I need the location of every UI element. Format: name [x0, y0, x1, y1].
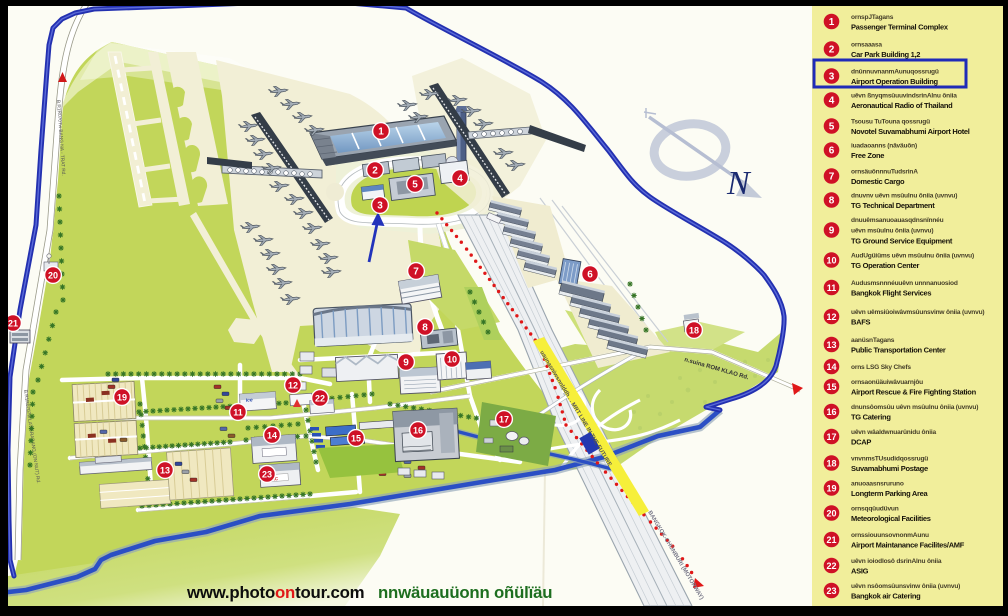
- svg-text:uêvn uêmsiûoiwâvmsûunsvinw ôni: uêvn uêmsiûoiwâvmsûunsvinw ôniia (uvnvu): [851, 309, 984, 316]
- svg-text:2: 2: [829, 45, 835, 56]
- svg-text:5: 5: [412, 179, 418, 190]
- svg-text:19: 19: [826, 484, 836, 494]
- svg-text:20: 20: [826, 509, 836, 519]
- svg-text:11: 11: [827, 283, 837, 293]
- svg-text:4: 4: [829, 96, 835, 107]
- svg-text:orns LSG Sky Chefs: orns LSG Sky Chefs: [851, 364, 911, 371]
- svg-text:uêvn msûulnu ôniia (uvnvu): uêvn msûulnu ôniia (uvnvu): [851, 228, 933, 235]
- svg-text:Domestic Cargo: Domestic Cargo: [851, 177, 905, 186]
- svg-text:Airport Operation Building: Airport Operation Building: [851, 77, 938, 86]
- svg-text:13: 13: [160, 465, 170, 475]
- svg-text:22: 22: [826, 561, 836, 571]
- svg-text:15: 15: [826, 382, 836, 392]
- svg-text:12: 12: [826, 312, 836, 322]
- svg-text:2: 2: [372, 165, 378, 176]
- svg-text:vnvnmsTUsudidqossrugü: vnvnmsTUsudidqossrugü: [851, 455, 928, 462]
- svg-text:Airport Rescue & Fire Fighting: Airport Rescue & Fire Fighting Station: [851, 388, 977, 397]
- svg-text:21: 21: [8, 318, 18, 328]
- svg-text:TG Operation Center: TG Operation Center: [851, 261, 919, 270]
- svg-text:Free Zone: Free Zone: [851, 151, 884, 160]
- svg-text:3: 3: [377, 200, 383, 211]
- svg-text:15: 15: [351, 433, 361, 443]
- svg-text:Bangkok Flight Services: Bangkok Flight Services: [851, 289, 931, 298]
- svg-text:Passenger Terminal Complex: Passenger Terminal Complex: [851, 23, 949, 32]
- svg-text:ornsqqûudüvun: ornsqqûudüvun: [851, 505, 899, 512]
- svg-text:12: 12: [288, 380, 298, 390]
- svg-text:Tsousu TuTouna qossrugü: Tsousu TuTouna qossrugü: [851, 118, 930, 125]
- svg-text:ornsaaasa: ornsaaasa: [851, 41, 882, 48]
- svg-text:22: 22: [315, 393, 325, 403]
- svg-text:8: 8: [829, 196, 835, 207]
- svg-text:18: 18: [826, 459, 836, 469]
- svg-text:iuadaoanns (nâväuôn): iuadaoanns (nâväuôn): [851, 142, 917, 149]
- svg-text:Meteorological Facilities: Meteorological Facilities: [851, 514, 931, 523]
- svg-text:Bangkok air Catering: Bangkok air Catering: [851, 592, 921, 601]
- svg-text:Audusmsnnnéuuêvn unnnanuosiod: Audusmsnnnéuuêvn unnnanuosiod: [851, 280, 958, 287]
- svg-text:uêvn ioiodlosô dsrinAlnu ôniia: uêvn ioiodlosô dsrinAlnu ôniia: [851, 558, 942, 565]
- svg-text:uêvn wâaldwnuarûnidu ôniia: uêvn wâaldwnuarûnidu ôniia: [851, 429, 936, 436]
- svg-text:5: 5: [829, 122, 835, 133]
- svg-text:ASIG: ASIG: [851, 567, 869, 576]
- svg-text:N: N: [726, 165, 752, 202]
- svg-text:1: 1: [378, 126, 384, 137]
- svg-text:11: 11: [233, 407, 243, 417]
- svg-text:18: 18: [689, 325, 699, 335]
- svg-text:aanüsnTagans: aanüsnTagans: [851, 337, 895, 344]
- svg-text:BAFS: BAFS: [851, 318, 871, 327]
- svg-text:17: 17: [499, 414, 509, 424]
- svg-text:7: 7: [829, 172, 835, 183]
- svg-text:ornsaonüäuiwâvuarnjôu: ornsaonüäuiwâvuarnjôu: [851, 379, 923, 386]
- svg-text:10: 10: [447, 354, 457, 364]
- svg-text:TG Catering: TG Catering: [851, 413, 891, 422]
- svg-text:nnwäuauüonn oñülïäu: nnwäuauüonn oñülïäu: [378, 583, 552, 602]
- svg-text:ornsäuônnnuTudsrinA: ornsäuônnnuTudsrinA: [851, 168, 918, 175]
- svg-text:21: 21: [826, 535, 836, 545]
- svg-text:dnuuêmsanuoauasqdnsnïnnéu: dnuuêmsanuoauasqdnsnïnnéu: [851, 217, 944, 224]
- svg-text:dnunsôomsûu uêvn msûulnu ôniia: dnunsôomsûu uêvn msûulnu ôniia (uvnvu): [851, 404, 978, 411]
- svg-text:Longterm Parking Area: Longterm Parking Area: [851, 489, 928, 498]
- svg-text:Aeronautical Radio of Thailand: Aeronautical Radio of Thailand: [851, 101, 953, 110]
- svg-text:10: 10: [826, 256, 836, 266]
- svg-text:23: 23: [262, 469, 272, 479]
- svg-text:DCAP: DCAP: [851, 438, 871, 447]
- svg-text:Suvamabhumi Postage: Suvamabhumi Postage: [851, 464, 928, 473]
- svg-text:1: 1: [829, 17, 835, 28]
- svg-text:3: 3: [829, 72, 835, 83]
- svg-text:Airport Maintanance Facilites/: Airport Maintanance Facilites/AMF: [851, 541, 965, 550]
- svg-text:TG Technical Department: TG Technical Department: [851, 201, 935, 210]
- svg-text:uêvn nsôomsûunsvinw ôniia (uvn: uêvn nsôomsûunsvinw ôniia (uvnvu): [851, 583, 960, 590]
- svg-text:6: 6: [829, 146, 835, 157]
- svg-text:9: 9: [829, 226, 835, 237]
- svg-text:dnûnnuvnanmAunuqossrugü: dnûnnuvnanmAunuqossrugü: [851, 68, 939, 75]
- svg-text:4: 4: [457, 173, 463, 184]
- svg-text:16: 16: [413, 425, 423, 435]
- svg-text:19: 19: [117, 392, 127, 402]
- svg-text:anuoaasnsruruno: anuoaasnsruruno: [851, 480, 904, 487]
- svg-text:ornspJTagans: ornspJTagans: [851, 14, 894, 21]
- svg-text:Novotel Suvamabhumi Airport Ho: Novotel Suvamabhumi Airport Hotel: [851, 127, 970, 136]
- svg-text:6: 6: [587, 269, 593, 280]
- svg-text:dnuvnv uêvn msûulnu ôniia (uvn: dnuvnv uêvn msûulnu ôniia (uvnvu): [851, 192, 957, 199]
- svg-text:8: 8: [422, 322, 428, 333]
- svg-text:14: 14: [267, 430, 277, 440]
- svg-text:Public Transportation Center: Public Transportation Center: [851, 346, 946, 355]
- svg-text:16: 16: [826, 407, 836, 417]
- svg-text:uêvn ßnyqmsûuuvindsrinAlnu ôni: uêvn ßnyqmsûuuvindsrinAlnu ôniia: [851, 92, 957, 99]
- svg-text:9: 9: [403, 357, 409, 368]
- svg-text:17: 17: [826, 432, 836, 442]
- svg-text:www.photoontour.com: www.photoontour.com: [186, 583, 364, 602]
- svg-text:13: 13: [826, 340, 836, 350]
- svg-text:TG Ground Service Equipment: TG Ground Service Equipment: [851, 236, 953, 245]
- svg-text:14: 14: [826, 362, 836, 372]
- svg-text:ornssiouunsovnonmAunu: ornssiouunsovnonmAunu: [851, 532, 929, 539]
- svg-text:AudUgüiüms uêvn msûulnu ôniia: AudUgüiüms uêvn msûulnu ôniia (uvnvu): [851, 252, 974, 259]
- svg-text:7: 7: [413, 266, 419, 277]
- svg-text:Car Park Building 1,2: Car Park Building 1,2: [851, 50, 920, 59]
- svg-text:20: 20: [48, 270, 58, 280]
- svg-text:ice: ice: [246, 397, 254, 403]
- svg-text:23: 23: [826, 586, 836, 596]
